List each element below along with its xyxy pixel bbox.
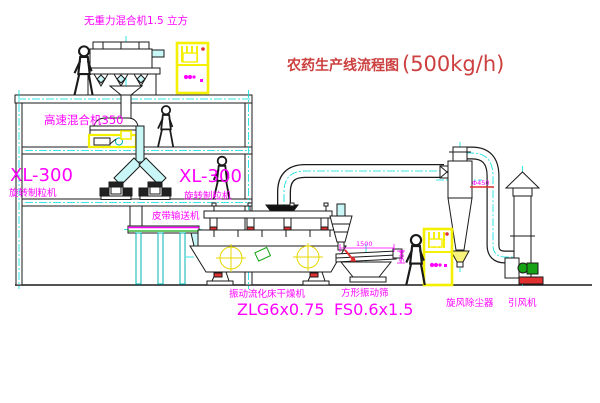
person-mixer-floor bbox=[158, 106, 173, 147]
label-granulator-left-model: XL-300 bbox=[10, 165, 73, 186]
fluid-bed-dryer bbox=[190, 203, 346, 285]
belt-conveyor bbox=[128, 226, 201, 284]
label-zero-gravity-mixer: 无重力混合机1.5 立方 bbox=[84, 14, 188, 27]
dim-cyclone-diameter: Φ450 bbox=[472, 179, 490, 187]
label-high-speed-mixer: 高速混合机350 bbox=[44, 113, 123, 127]
process-flow-diagram: 无重力混合机1.5 立方 农药生产线流程图 (500kg/h) 高速混合机350… bbox=[0, 0, 600, 403]
label-cyclone: 旋风除尘器 bbox=[446, 297, 494, 309]
label-sieve-name: 方形振动筛 bbox=[341, 287, 389, 299]
control-cabinet-2 bbox=[424, 229, 452, 285]
page-title: 农药生产线流程图 bbox=[286, 57, 399, 74]
control-cabinet-1 bbox=[177, 43, 208, 93]
label-granulator-left-name: 旋转制粒机 bbox=[9, 187, 57, 199]
diagram-canvas: 无重力混合机1.5 立方 农药生产线流程图 (500kg/h) 高速混合机350… bbox=[0, 0, 600, 403]
page-title-capacity: (500kg/h) bbox=[402, 52, 504, 76]
discharge-chute bbox=[130, 206, 142, 227]
label-granulator-center-model: XL-300 bbox=[179, 166, 242, 187]
person-ground bbox=[406, 235, 425, 285]
label-sieve-model: FS0.6x1.5 bbox=[334, 300, 413, 319]
label-dryer-model: ZLG6x0.75 bbox=[237, 300, 325, 319]
zero-gravity-mixer bbox=[82, 42, 164, 121]
indicator-light bbox=[201, 47, 205, 51]
granulator-left bbox=[100, 182, 132, 200]
dim-sieve-width: 1500 bbox=[356, 240, 373, 248]
label-granulator-center-name: 旋转制粒机 bbox=[184, 190, 232, 202]
indicator-light bbox=[445, 232, 449, 236]
granulator-right bbox=[139, 182, 171, 200]
label-belt-conveyor: 皮带输送机 bbox=[152, 210, 200, 222]
label-fan: 引风机 bbox=[508, 297, 537, 309]
dim-sieve-height: 500 bbox=[398, 250, 406, 262]
exhaust-duct bbox=[266, 166, 454, 218]
label-dryer-name: 振动流化床干燥机 bbox=[229, 288, 306, 300]
